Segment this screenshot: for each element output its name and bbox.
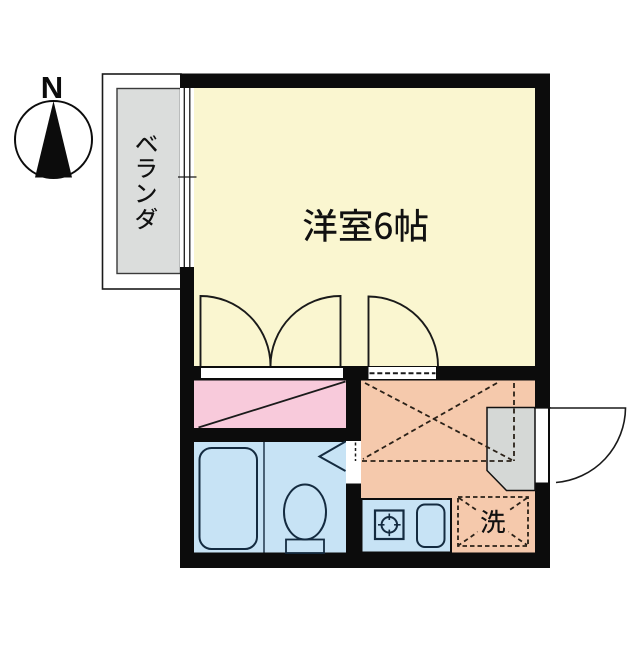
svg-text:N: N bbox=[41, 70, 63, 105]
